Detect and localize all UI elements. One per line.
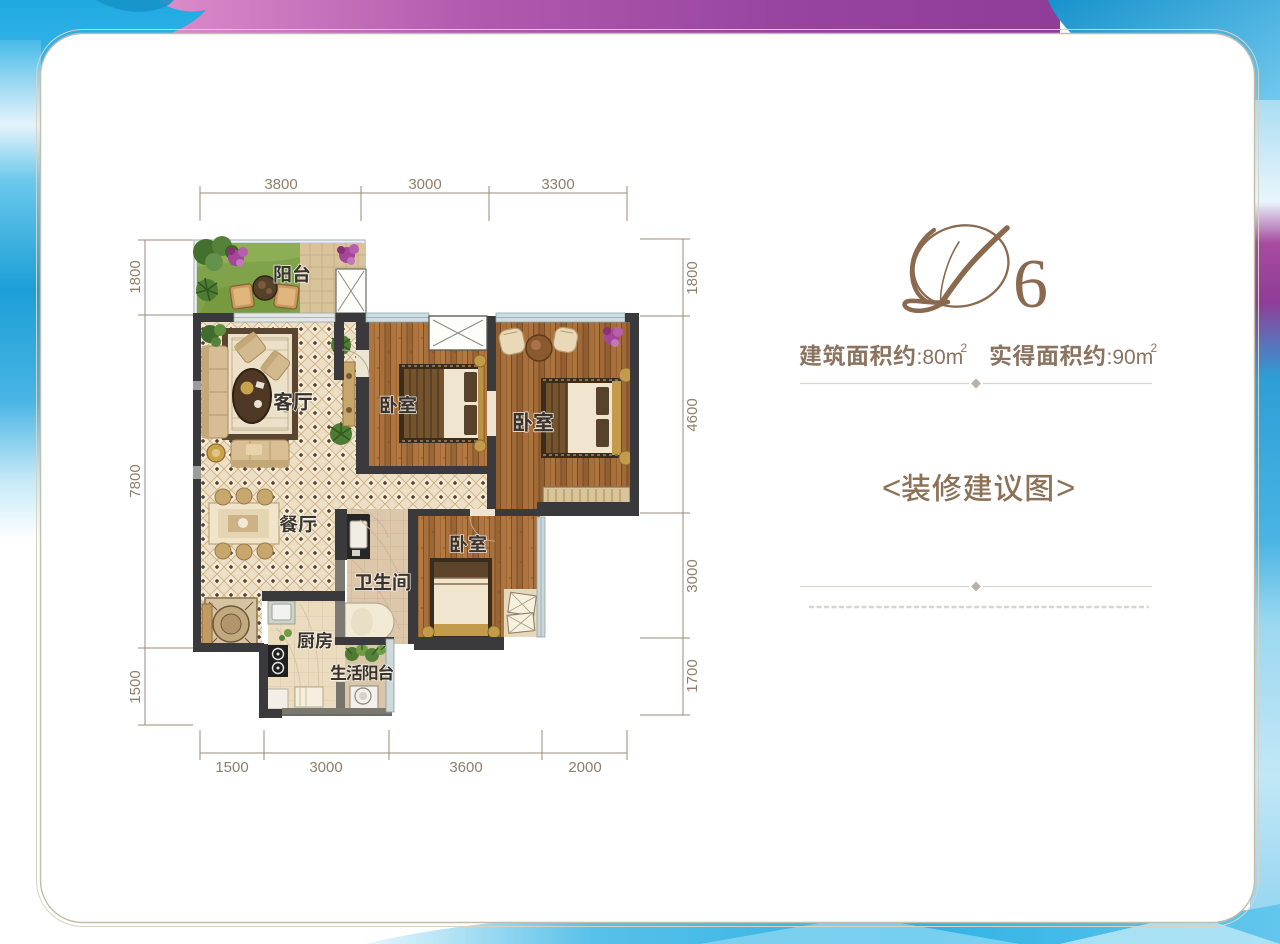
svg-text:2: 2: [1151, 341, 1158, 355]
svg-text:1500: 1500: [127, 670, 144, 703]
svg-text:4600: 4600: [684, 398, 701, 431]
svg-text:1500: 1500: [215, 759, 248, 776]
svg-text:6: 6: [1013, 246, 1048, 323]
svg-text:3800: 3800: [264, 176, 297, 193]
svg-text:3000: 3000: [684, 559, 701, 592]
svg-text:3600: 3600: [449, 759, 482, 776]
svg-text:2: 2: [961, 341, 968, 355]
svg-text:2000: 2000: [568, 759, 601, 776]
svg-text:7800: 7800: [127, 464, 144, 497]
svg-text:1800: 1800: [684, 261, 701, 294]
svg-text:3000: 3000: [408, 176, 441, 193]
svg-text:3000: 3000: [309, 759, 342, 776]
svg-text::90m: :90m: [1107, 346, 1154, 369]
svg-text:>: >: [1056, 469, 1075, 506]
svg-text:3300: 3300: [541, 176, 574, 193]
svg-text::80m: :80m: [917, 346, 964, 369]
svg-text:1700: 1700: [684, 659, 701, 692]
svg-text:1800: 1800: [127, 260, 144, 293]
svg-text:<: <: [882, 469, 901, 506]
